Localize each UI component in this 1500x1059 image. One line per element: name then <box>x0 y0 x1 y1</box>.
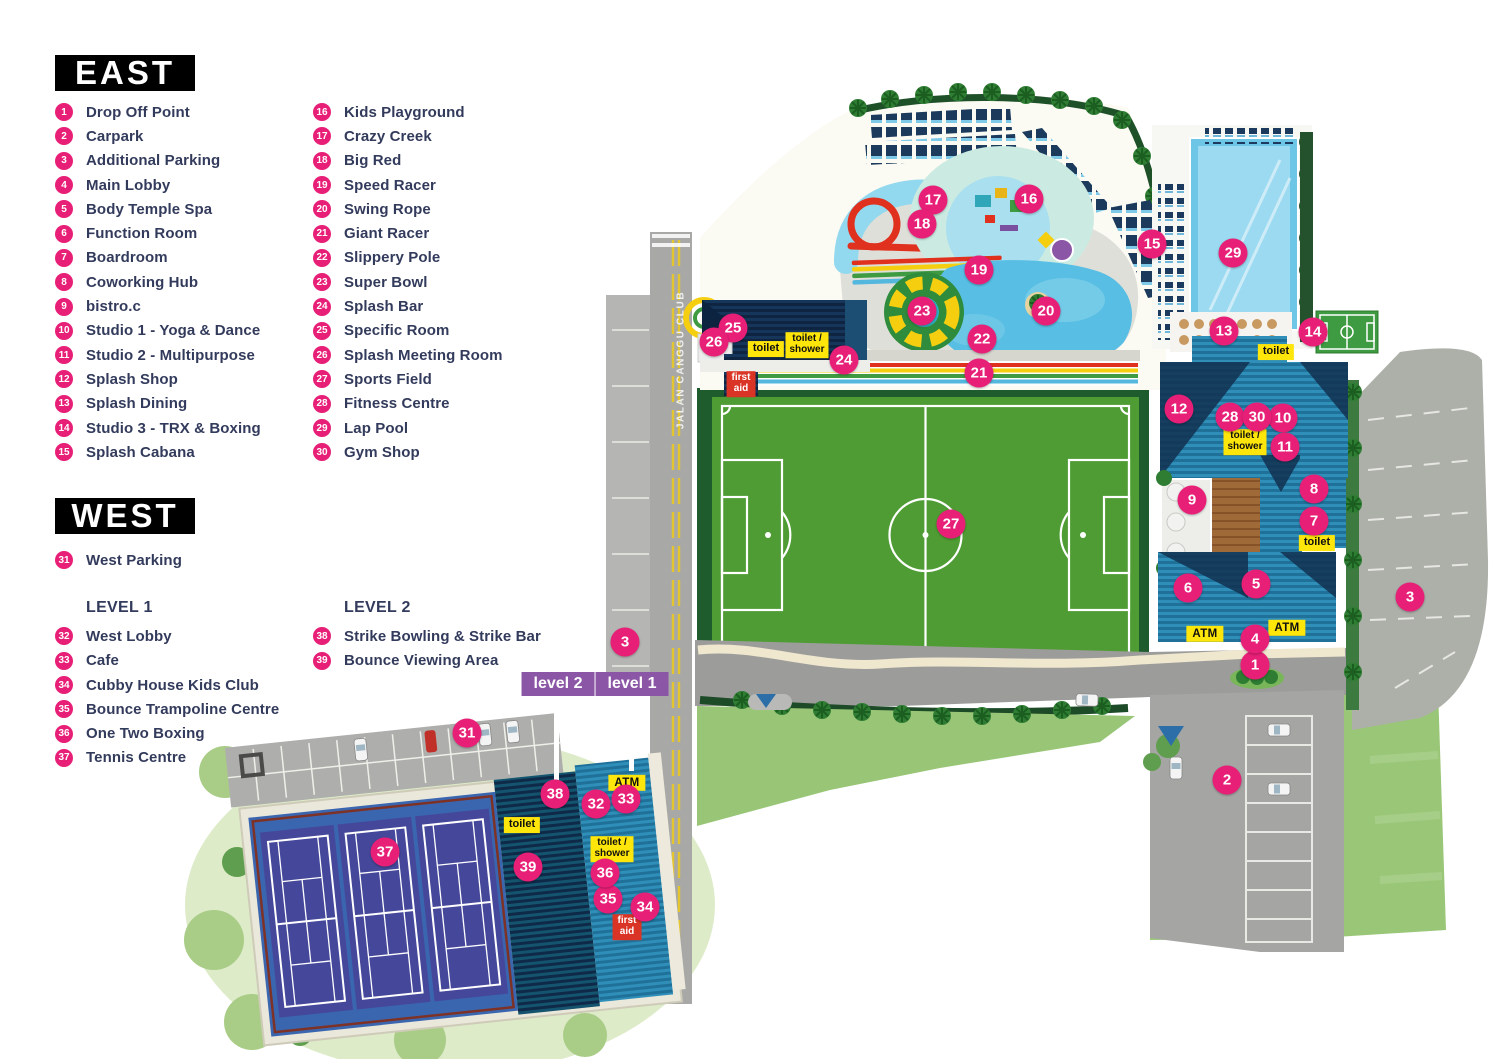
legend-item: 27Sports Field <box>313 367 573 391</box>
legend-item-number: 21 <box>313 225 331 243</box>
legend-item-label: Studio 2 - Multipurpose <box>86 347 255 364</box>
map-marker-15: 15 <box>1138 230 1167 259</box>
map-marker-1: 1 <box>1241 651 1270 680</box>
map-marker-28: 28 <box>1216 403 1245 432</box>
legend-item-number: 39 <box>313 652 331 670</box>
legend-west-title: WEST <box>55 498 195 534</box>
legend-east-title: EAST <box>55 55 195 91</box>
legend-item-label: West Lobby <box>86 628 172 645</box>
legend-item: 38Strike Bowling & Strike Bar <box>313 624 573 648</box>
map-marker-8: 8 <box>1300 475 1329 504</box>
legend-item-number: 22 <box>313 249 331 267</box>
legend-item: 29Lap Pool <box>313 416 573 440</box>
legend-item: 13Splash Dining <box>55 392 313 416</box>
legend-item-number: 38 <box>313 627 331 645</box>
toilet-shower-label: toilet / shower <box>590 836 633 862</box>
legend-level2-items: 38Strike Bowling & Strike Bar39Bounce Vi… <box>313 624 573 673</box>
legend-item: 24Splash Bar <box>313 294 573 318</box>
map-marker-21: 21 <box>965 359 994 388</box>
legend-item-number: 3 <box>55 152 73 170</box>
atm-label: ATM <box>1268 620 1305 636</box>
legend-item-label: Additional Parking <box>86 152 220 169</box>
map-marker-5: 5 <box>1242 570 1271 599</box>
legend-item-label: Strike Bowling & Strike Bar <box>344 628 541 645</box>
legend-level2-title: LEVEL 2 <box>344 599 573 617</box>
legend-item-label: Drop Off Point <box>86 104 190 121</box>
legend-item-number: 37 <box>55 749 73 767</box>
legend-item: 1Drop Off Point <box>55 100 313 124</box>
legend-item-number: 35 <box>55 700 73 718</box>
legend-item-label: Bounce Trampoline Centre <box>86 701 279 718</box>
legend-item-label: Fitness Centre <box>344 395 450 412</box>
legend-item-number: 8 <box>55 273 73 291</box>
legend-item: 22Slippery Pole <box>313 246 573 270</box>
resort-map-page: EAST 1Drop Off Point2Carpark3Additional … <box>0 0 1500 1059</box>
toilet-label: toilet <box>1299 535 1335 551</box>
legend-item: 15Splash Cabana <box>55 440 313 464</box>
legend-item-label: Sports Field <box>344 371 432 388</box>
legend-item-number: 25 <box>313 322 331 340</box>
map-level-2-label: level 2 <box>522 672 595 696</box>
legend-item: 2Carpark <box>55 124 313 148</box>
legend-item: 20Swing Rope <box>313 197 573 221</box>
legend-item: 36One Two Boxing <box>55 721 313 745</box>
legend-item-number: 16 <box>313 103 331 121</box>
toilet-label: toilet <box>748 341 784 357</box>
legend-item-number: 32 <box>55 627 73 645</box>
map-marker-33: 33 <box>612 785 641 814</box>
legend-item: 6Function Room <box>55 221 313 245</box>
map-marker-32: 32 <box>582 790 611 819</box>
legend-item: 30Gym Shop <box>313 440 573 464</box>
legend-item-label: Specific Room <box>344 322 450 339</box>
legend-item-label: Splash Meeting Room <box>344 347 503 364</box>
legend-item-number: 9 <box>55 298 73 316</box>
legend-item: 37Tennis Centre <box>55 746 313 770</box>
legend-item-number: 13 <box>55 395 73 413</box>
legend-item-label: Function Room <box>86 225 197 242</box>
map-marker-9: 9 <box>1178 486 1207 515</box>
legend-east-col1: 1Drop Off Point2Carpark3Additional Parki… <box>55 100 313 464</box>
atm-label: ATM <box>1186 626 1223 642</box>
legend-item-number: 27 <box>313 370 331 388</box>
legend-item-number: 23 <box>313 273 331 291</box>
legend-item-label: Studio 3 - TRX & Boxing <box>86 420 261 437</box>
legend-item: 3Additional Parking <box>55 149 313 173</box>
toilet-label: toilet <box>504 817 540 833</box>
legend-item-number: 28 <box>313 395 331 413</box>
map-marker-39: 39 <box>514 853 543 882</box>
map-marker-11: 11 <box>1271 433 1300 462</box>
legend-item: 25Specific Room <box>313 319 573 343</box>
legend-item-number: 36 <box>55 725 73 743</box>
map-marker-2: 2 <box>1213 766 1242 795</box>
legend-item-label: Gym Shop <box>344 444 420 461</box>
level2-pointer-line <box>554 697 559 781</box>
legend-item-label: Splash Cabana <box>86 444 195 461</box>
legend-item-label: Cafe <box>86 652 119 669</box>
legend-item-label: Lap Pool <box>344 420 408 437</box>
map-marker-7: 7 <box>1300 507 1329 536</box>
legend-item-number: 17 <box>313 127 331 145</box>
map-marker-20: 20 <box>1032 297 1061 326</box>
legend-item-label: Splash Dining <box>86 395 187 412</box>
legend-item-label: Slippery Pole <box>344 249 440 266</box>
legend-item: 39Bounce Viewing Area <box>313 649 573 673</box>
legend-item-number: 15 <box>55 443 73 461</box>
legend-item-number: 14 <box>55 419 73 437</box>
legend-item: 23Super Bowl <box>313 270 573 294</box>
legend-item-label: Carpark <box>86 128 143 145</box>
legend-item-label: Big Red <box>344 152 401 169</box>
map-marker-26: 26 <box>700 328 729 357</box>
legend-item: 16Kids Playground <box>313 100 573 124</box>
map-marker-14: 14 <box>1299 318 1328 347</box>
legend-item-label: Studio 1 - Yoga & Dance <box>86 322 260 339</box>
map-marker-13: 13 <box>1210 317 1239 346</box>
legend-item: 5Body Temple Spa <box>55 197 313 221</box>
map-marker-22: 22 <box>968 325 997 354</box>
map-marker-29: 29 <box>1219 239 1248 268</box>
legend-item: 11Studio 2 - Multipurpose <box>55 343 313 367</box>
legend-item-number: 1 <box>55 103 73 121</box>
legend-item-label: Bounce Viewing Area <box>344 652 498 669</box>
first-aid-label: first aid <box>727 371 756 397</box>
legend-item-number: 24 <box>313 298 331 316</box>
legend-item: 31West Parking <box>55 548 573 572</box>
toilet-shower-label: toilet / shower <box>785 332 828 358</box>
legend-item: 10Studio 1 - Yoga & Dance <box>55 319 313 343</box>
legend-item: 17Crazy Creek <box>313 124 573 148</box>
legend-item: 9bistro.c <box>55 294 313 318</box>
legend-item-label: West Parking <box>86 552 182 569</box>
level1-pointer-line <box>629 697 634 771</box>
legend-item: 34Cubby House Kids Club <box>55 673 313 697</box>
legend-item-number: 10 <box>55 322 73 340</box>
legend-west-items: 31West Parking <box>55 548 573 572</box>
legend-item-label: Main Lobby <box>86 177 170 194</box>
legend-item-label: One Two Boxing <box>86 725 205 742</box>
legend-item: 19Speed Racer <box>313 173 573 197</box>
map-marker-35: 35 <box>594 885 623 914</box>
map-marker-27: 27 <box>937 510 966 539</box>
legend-item-label: Speed Racer <box>344 177 436 194</box>
legend-item-label: Super Bowl <box>344 274 428 291</box>
toilet-shower-label: toilet / shower <box>1223 429 1266 455</box>
legend-item-number: 30 <box>313 443 331 461</box>
legend-item-label: Cubby House Kids Club <box>86 677 259 694</box>
legend-item-label: Kids Playground <box>344 104 465 121</box>
map-marker-12: 12 <box>1165 395 1194 424</box>
map-marker-36: 36 <box>591 859 620 888</box>
legend-item-number: 31 <box>55 551 73 569</box>
legend-item-number: 20 <box>313 200 331 218</box>
legend-east: EAST 1Drop Off Point2Carpark3Additional … <box>55 55 573 464</box>
map-marker-3: 3 <box>611 628 640 657</box>
map-marker-19: 19 <box>965 256 994 285</box>
map-marker-18: 18 <box>908 210 937 239</box>
legend-item: 4Main Lobby <box>55 173 313 197</box>
map-marker-30: 30 <box>1243 403 1272 432</box>
legend-item: 21Giant Racer <box>313 221 573 245</box>
legend-item: 35Bounce Trampoline Centre <box>55 697 313 721</box>
legend-item-number: 11 <box>55 346 73 364</box>
map-marker-10: 10 <box>1269 404 1298 433</box>
legend-item: 7Boardroom <box>55 246 313 270</box>
legend-item-number: 29 <box>313 419 331 437</box>
legend-item: 18Big Red <box>313 149 573 173</box>
legend-item: 12Splash Shop <box>55 367 313 391</box>
legend-item-number: 12 <box>55 370 73 388</box>
legend-level1-title: LEVEL 1 <box>86 599 313 617</box>
legend-item-label: Splash Shop <box>86 371 178 388</box>
legend-item-label: Crazy Creek <box>344 128 432 145</box>
map-marker-23: 23 <box>908 297 937 326</box>
legend-item-number: 19 <box>313 176 331 194</box>
legend-item-number: 4 <box>55 176 73 194</box>
map-marker-24: 24 <box>830 346 859 375</box>
legend-item-label: Splash Bar <box>344 298 423 315</box>
map-marker-37: 37 <box>371 838 400 867</box>
legend-item-label: Tennis Centre <box>86 749 186 766</box>
legend-item-number: 33 <box>55 652 73 670</box>
legend-item-label: Swing Rope <box>344 201 431 218</box>
legend-west: WEST 31West Parking LEVEL 1 32West Lobby… <box>55 498 573 770</box>
legend-item-number: 18 <box>313 152 331 170</box>
map-level-1-label: level 1 <box>596 672 669 696</box>
legend-item-label: Giant Racer <box>344 225 429 242</box>
toilet-label: toilet <box>1258 344 1294 360</box>
map-marker-31: 31 <box>453 719 482 748</box>
map-marker-6: 6 <box>1174 574 1203 603</box>
map-marker-3: 3 <box>1396 583 1425 612</box>
legend-item-label: Boardroom <box>86 249 168 266</box>
legend-item-number: 7 <box>55 249 73 267</box>
map-marker-16: 16 <box>1015 185 1044 214</box>
legend-item: 33Cafe <box>55 649 313 673</box>
legend-item-number: 6 <box>55 225 73 243</box>
legend-item: 28Fitness Centre <box>313 392 573 416</box>
legend-east-col2: 16Kids Playground17Crazy Creek18Big Red1… <box>313 100 573 464</box>
road-label: JALAN CANGGU CLUB <box>676 291 687 429</box>
map-marker-34: 34 <box>631 893 660 922</box>
legend-item: 26Splash Meeting Room <box>313 343 573 367</box>
legend-item-number: 2 <box>55 127 73 145</box>
legend-item-number: 5 <box>55 200 73 218</box>
legend-item-label: Body Temple Spa <box>86 201 212 218</box>
map-marker-38: 38 <box>541 780 570 809</box>
legend-item: 32West Lobby <box>55 624 313 648</box>
legend-item-number: 26 <box>313 346 331 364</box>
legend-item-label: bistro.c <box>86 298 141 315</box>
legend-item-number: 34 <box>55 676 73 694</box>
legend-item: 8Coworking Hub <box>55 270 313 294</box>
legend-item: 14Studio 3 - TRX & Boxing <box>55 416 313 440</box>
map-marker-4: 4 <box>1241 625 1270 654</box>
legend-level1-items: 32West Lobby33Cafe34Cubby House Kids Clu… <box>55 624 313 770</box>
legend-item-label: Coworking Hub <box>86 274 198 291</box>
